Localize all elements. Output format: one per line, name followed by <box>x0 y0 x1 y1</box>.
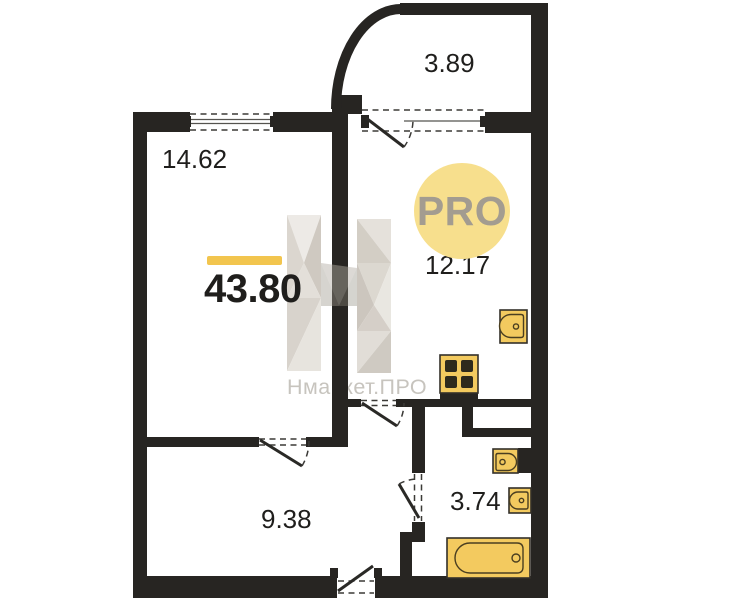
living-room-door-swing <box>259 439 309 466</box>
total-area-underline <box>207 256 282 265</box>
watermark-brand-text: Нмаркет.ПРО <box>287 375 427 399</box>
balcony-door-swing <box>366 118 413 147</box>
area-label-living-room: 14.62 <box>162 146 227 172</box>
kitchen-sink-icon <box>500 310 528 343</box>
entrance-door-swing <box>338 566 374 593</box>
area-label-balcony: 3.89 <box>424 50 475 76</box>
toilet-icon <box>509 488 531 513</box>
living-room-window <box>184 114 277 130</box>
total-area-label: 43.80 <box>204 267 302 312</box>
floor-plan-drawing: Нмаркет.ПРО <box>0 0 744 600</box>
washbasin-icon <box>493 449 518 473</box>
floor-plan-image: Нмаркет.ПРО <box>0 0 744 600</box>
area-label-bathroom: 3.74 <box>450 488 501 514</box>
bathroom-door-swing <box>399 474 422 521</box>
area-label-hallway: 9.38 <box>261 506 312 532</box>
bathtub-icon <box>447 538 530 578</box>
pro-badge: PRO <box>414 163 510 259</box>
stove-icon <box>440 355 478 400</box>
balcony-curved-wall <box>336 9 401 109</box>
